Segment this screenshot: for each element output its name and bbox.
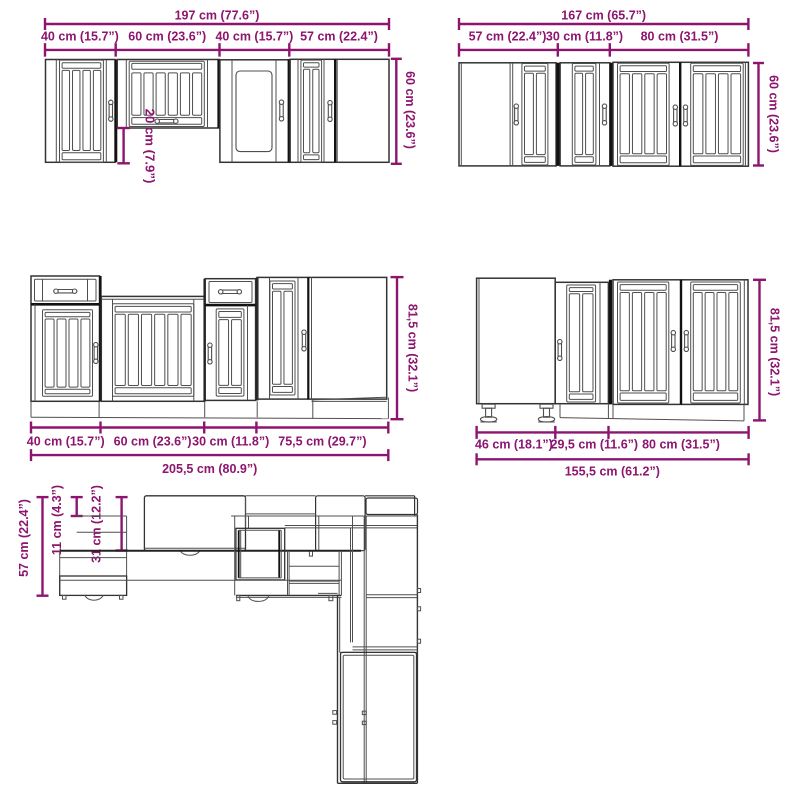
svg-text:60 cm (23.6”): 60 cm (23.6”) <box>128 29 206 43</box>
svg-text:57 cm (22.4”): 57 cm (22.4”) <box>300 29 378 43</box>
svg-text:60 cm (23.6”): 60 cm (23.6”) <box>403 71 417 149</box>
svg-text:57 cm (22.4”): 57 cm (22.4”) <box>17 499 31 577</box>
svg-text:81,5 cm (32.1”): 81,5 cm (32.1”) <box>405 304 419 392</box>
svg-text:60 cm (23.6”): 60 cm (23.6”) <box>767 75 781 153</box>
svg-text:60 cm (23.6”): 60 cm (23.6”) <box>114 435 192 449</box>
svg-text:197 cm (77.6”): 197 cm (77.6”) <box>175 9 260 23</box>
svg-text:205,5 cm (80.9”): 205,5 cm (80.9”) <box>162 462 257 476</box>
svg-text:40 cm (15.7”): 40 cm (15.7”) <box>27 435 105 449</box>
svg-text:75,5 cm (29.7”): 75,5 cm (29.7”) <box>278 435 366 449</box>
svg-text:40 cm (15.7”): 40 cm (15.7”) <box>41 29 119 43</box>
svg-text:57 cm (22.4”): 57 cm (22.4”) <box>469 29 547 43</box>
svg-text:11 cm (4.3”): 11 cm (4.3”) <box>50 485 64 555</box>
svg-text:81,5 cm (32.1”): 81,5 cm (32.1”) <box>768 308 782 396</box>
svg-text:20 cm (7.9”): 20 cm (7.9”) <box>143 109 158 184</box>
svg-text:30 cm (11.8”): 30 cm (11.8”) <box>546 29 623 43</box>
svg-text:80 cm (31.5”): 80 cm (31.5”) <box>641 29 719 43</box>
svg-text:40 cm (15.7”): 40 cm (15.7”) <box>215 29 293 43</box>
svg-text:167 cm (65.7”): 167 cm (65.7”) <box>561 9 646 23</box>
svg-text:80 cm (31.5”): 80 cm (31.5”) <box>642 438 720 452</box>
svg-text:29,5 cm (11.6”): 29,5 cm (11.6”) <box>551 438 639 452</box>
svg-text:155,5 cm (61.2”): 155,5 cm (61.2”) <box>565 464 660 478</box>
svg-text:46 cm (18.1”): 46 cm (18.1”) <box>475 438 553 452</box>
svg-text:30 cm (11.8”): 30 cm (11.8”) <box>192 435 269 449</box>
